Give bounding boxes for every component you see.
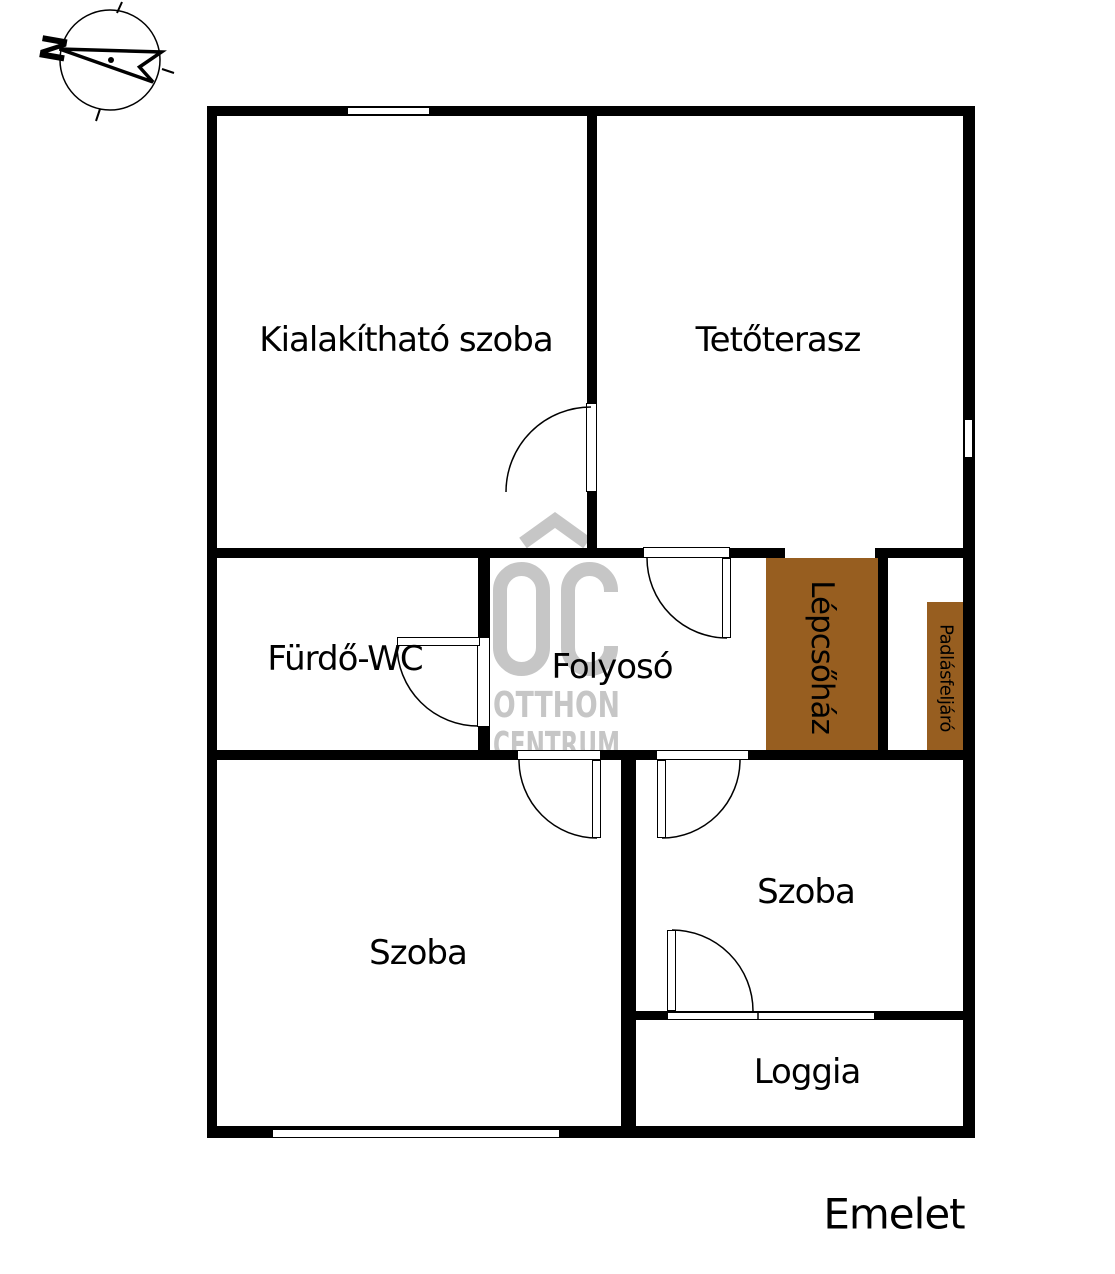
room-label-szoba-jobb: Szoba — [757, 872, 855, 912]
door-swing-arc — [519, 760, 597, 838]
door-leaf — [592, 760, 601, 838]
wall — [878, 558, 888, 750]
wall — [207, 106, 217, 1138]
window — [347, 107, 430, 115]
door-swing-arc — [647, 558, 727, 638]
floor-plan: OTTHON CENTRUM — [0, 0, 1115, 1274]
door-swing-arc — [662, 760, 740, 838]
wall — [217, 750, 518, 760]
compass-circle — [60, 10, 160, 110]
door-opening — [586, 403, 597, 492]
room-label-padlasfeljaro: Padlásfeljáró — [936, 624, 957, 732]
room-label-szoba-bal: Szoba — [369, 933, 467, 973]
wall — [217, 548, 643, 558]
door-swing-arcs — [397, 407, 758, 1020]
compass-tick — [117, 2, 122, 13]
wall — [963, 106, 975, 1138]
wall — [730, 548, 785, 558]
door-leaf — [657, 760, 666, 838]
window — [272, 1129, 560, 1138]
door-swing-arc — [672, 930, 753, 1011]
room-label-kialakithato-szoba: Kialakítható szoba — [259, 320, 552, 360]
wall — [748, 750, 963, 760]
room-label-loggia: Loggia — [754, 1052, 861, 1092]
door-opening — [643, 547, 730, 558]
wall — [621, 760, 636, 1126]
room-label-lepcsohaz: Lépcsőház — [804, 580, 840, 734]
door-leaf — [667, 930, 676, 1011]
compass-needle-icon — [60, 49, 162, 82]
wall — [875, 548, 963, 558]
wall — [600, 750, 657, 760]
stair-opening — [785, 548, 875, 558]
compass-center-dot — [108, 57, 114, 63]
wall — [207, 106, 975, 116]
compass-north-label: N — [30, 31, 74, 66]
door-leaf — [722, 558, 731, 638]
compass-tick — [162, 69, 174, 73]
room-label-furdo-wc: Fürdő-WC — [267, 639, 422, 679]
door-swing-arc — [506, 407, 591, 492]
door-opening — [517, 750, 601, 760]
room-label-folyoso: Folyosó — [551, 647, 672, 687]
floor-title: Emelet — [823, 1190, 964, 1239]
window — [667, 1012, 875, 1020]
door-opening — [477, 637, 490, 727]
watermark-line1: OTTHON — [493, 685, 620, 726]
window — [964, 419, 973, 458]
room-label-tetoterasz: Tetőterasz — [696, 320, 861, 360]
compass: N — [30, 2, 174, 121]
compass-tick — [96, 109, 100, 121]
door-opening — [656, 750, 749, 760]
watermark-roof-icon — [523, 520, 587, 543]
